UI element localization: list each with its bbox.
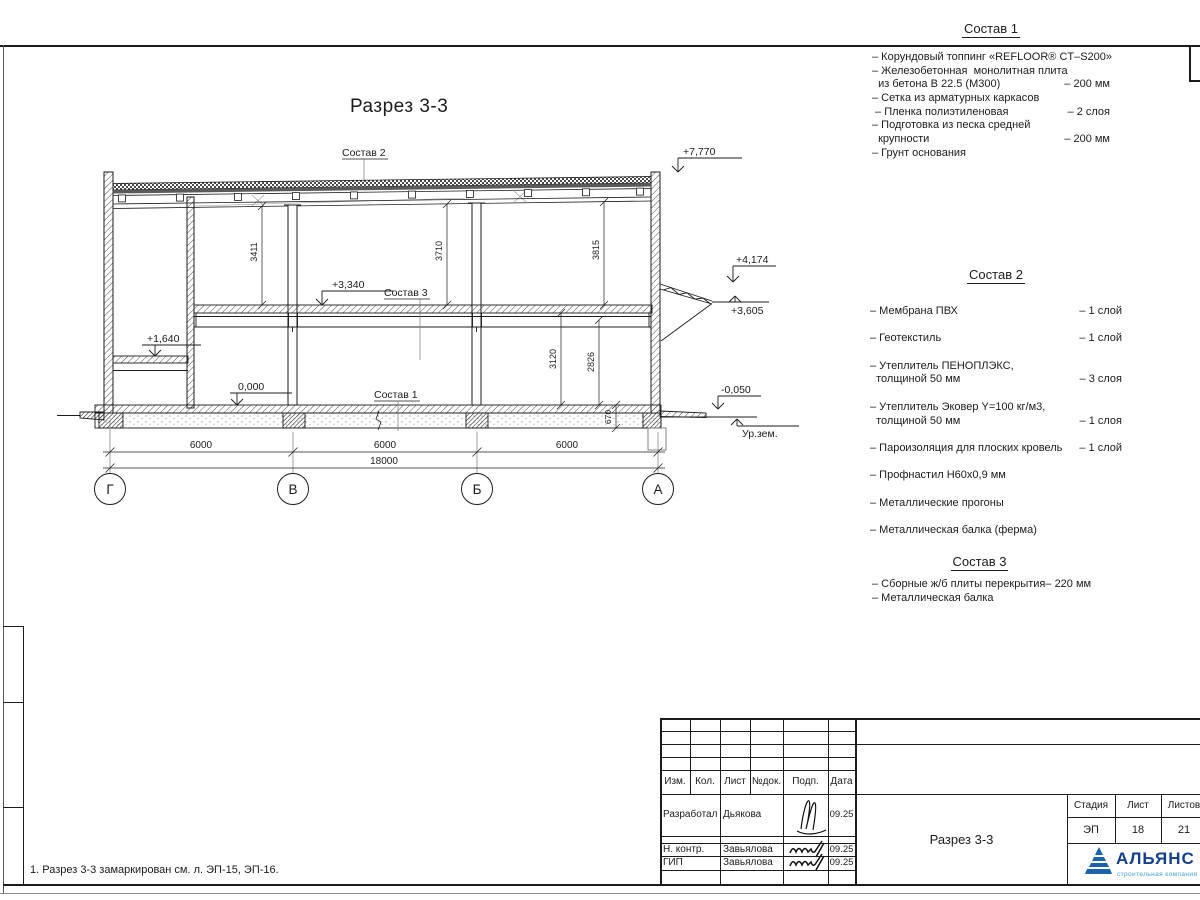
ramp-edge (80, 412, 104, 420)
item-text: – Мембрана ПВХ (870, 305, 958, 319)
staff-name: Завьялова (723, 843, 783, 856)
ground-level-label: Ур.зем. (742, 428, 778, 440)
rev-header: Лист (720, 770, 750, 794)
canopy (660, 284, 712, 341)
item-text: – Сетка из арматурных каркасов (872, 92, 1039, 106)
sostav3-title-text: Состав 3 (951, 554, 1009, 571)
item-qty: – 1 слой (1079, 305, 1122, 319)
list-item: – Утеплитель Эковер Y=100 кг/м3, (870, 401, 1122, 415)
rev-header: Дата (828, 770, 855, 794)
format-box-bottom (1189, 80, 1200, 82)
foundation-pad (466, 413, 488, 428)
staff-role: Разработал (663, 794, 720, 836)
axis-letter: Г (106, 482, 114, 497)
item-qty: – 200 мм (1064, 78, 1110, 92)
drawing-sheet: +7,770 +4,174 +3,605 +3,340 +1,640 0,000… (0, 0, 1200, 900)
item-text: крупности (872, 133, 929, 147)
elevation-label: +7,770 (683, 146, 716, 158)
company-logo-icon (1085, 847, 1112, 874)
drawing-title: Разрез 3-3 (350, 96, 448, 118)
sostav1-label: Состав 1 (374, 389, 418, 401)
sheets-header: Листов (1161, 794, 1200, 817)
list-item (870, 483, 1122, 497)
dim-text: 3411 (249, 242, 259, 261)
sostav2-title-text: Состав 2 (967, 267, 1025, 284)
rev-header: Изм. (660, 770, 690, 794)
list-item (870, 428, 1122, 442)
walls (104, 172, 660, 413)
span-dim: 6000 (556, 440, 579, 451)
list-item: крупности– 200 мм (872, 133, 1110, 147)
sostav1-title-text: Состав 1 (962, 21, 1020, 38)
item-text: – Железобетонная монолитная плита (872, 65, 1068, 79)
item-qty: – 2 слоя (1068, 106, 1110, 120)
foundation-pad (643, 413, 661, 428)
item-qty: – 1 слой (1079, 442, 1122, 456)
sostav2-title: Состав 2 (870, 267, 1122, 284)
tb-line (720, 718, 721, 885)
elevation-label: +3,605 (731, 305, 764, 317)
total-dim: 18000 (370, 456, 398, 467)
dim-text: 2826 (586, 352, 596, 372)
list-item: – Геотекстиль– 1 слой (870, 332, 1122, 346)
sheet-note: 1. Разрез 3-3 замаркирован см. л. ЭП-15,… (30, 864, 279, 876)
staff-name: Завьялова (723, 856, 783, 870)
format-box-left (1189, 45, 1191, 81)
list-item (870, 510, 1122, 524)
staff-role: ГИП (663, 856, 720, 870)
list-item: из бетона В 22.5 (М300)– 200 мм (872, 78, 1110, 92)
list-item: – Сборные ж/б плиты перекрытия– 220 мм (872, 578, 1087, 592)
span-dim: 6000 (374, 440, 397, 451)
landing (113, 356, 188, 363)
tb-line (660, 744, 1200, 745)
columns (284, 203, 485, 405)
item-qty: – 1 слой (1079, 332, 1122, 346)
frame-top-line (0, 45, 1200, 47)
item-qty: – 1 слоя (1080, 415, 1122, 429)
list-item: – Металлические прогоны (870, 497, 1122, 511)
rev-header: Кол. (690, 770, 720, 794)
sostav1-title: Состав 1 (872, 21, 1110, 38)
bottom-dimension-texts: 6000 6000 6000 18000 Г В Б А (106, 440, 662, 497)
span-dim: 6000 (190, 440, 213, 451)
staff-date: 09.25 (828, 856, 855, 870)
elevation-label: -0,050 (721, 384, 751, 396)
sostav1-list: – Корундовый топпинг «REFLOOR® CT–S200» … (872, 51, 1110, 161)
item-text: – Подготовка из песка средней (872, 119, 1030, 133)
item-qty: – 200 мм (1064, 133, 1110, 147)
item-text: – Сборные ж/б плиты перекрытия (872, 578, 1045, 592)
elevation-label: +4,174 (736, 254, 769, 266)
item-text: толщиной 50 мм (870, 415, 960, 429)
sheet-left-edge (3, 45, 4, 893)
item-qty: – 3 слоя (1080, 373, 1122, 387)
stamp-strip-divider (3, 807, 23, 808)
sheets-total: 21 (1161, 817, 1200, 843)
item-text: – Утеплитель Эковер Y=100 кг/м3, (870, 401, 1045, 415)
sheet-header: Лист (1115, 794, 1161, 817)
staff-date: 09.25 (828, 843, 855, 856)
list-item (870, 456, 1122, 470)
item-text: – Пленка полиэтиленовая (872, 106, 1008, 120)
inner-wall (187, 197, 194, 408)
sheet-bottom-edge (0, 893, 1200, 894)
foundation-pit (648, 428, 666, 450)
company-logo-text: АЛЬЯНС (1116, 849, 1195, 869)
item-text: – Утеплитель ПЕНОПЛЭКС, (870, 360, 1014, 374)
tb-line (660, 836, 855, 837)
stage-value: ЭП (1067, 817, 1115, 843)
rev-header: Подп. (783, 770, 828, 794)
apron (660, 411, 706, 418)
axis-letter: А (653, 482, 662, 497)
column-b (472, 203, 481, 405)
list-item: – Сетка из арматурных каркасов (872, 92, 1110, 106)
vertical-dimension-texts: 3411 3710 3815 3120 2826 670 (249, 240, 613, 424)
dim-text: 3710 (434, 241, 444, 261)
tb-line (660, 870, 855, 871)
item-qty: – 220 мм (1045, 578, 1091, 592)
item-text: – Пароизоляция для плоских кровель (870, 442, 1062, 456)
ground-floor (57, 405, 757, 450)
list-item: – Мембрана ПВХ– 1 слой (870, 305, 1122, 319)
list-item: – Утеплитель ПЕНОПЛЭКС, (870, 360, 1122, 374)
list-item: – Подготовка из песка средней (872, 119, 1110, 133)
list-item (870, 319, 1122, 333)
company-tagline: строительная компания (1117, 871, 1197, 878)
item-text: – Металлическая балка (872, 592, 994, 606)
item-text: – Металлическая балка (ферма) (870, 524, 1037, 538)
staff-name: Дьякова (723, 794, 783, 836)
list-item (870, 387, 1122, 401)
tb-line (783, 718, 784, 885)
sheet-title-cell: Разрез 3-3 (856, 794, 1067, 885)
left-wall (104, 172, 113, 413)
item-text: – Грунт основания (872, 147, 966, 161)
list-item (870, 346, 1122, 360)
rev-header: №док. (750, 770, 783, 794)
list-item: – Металлическая балка (ферма) (870, 524, 1122, 538)
axis-letter: Б (473, 482, 482, 497)
tb-line (660, 718, 1200, 720)
sostav3-list: – Сборные ж/б плиты перекрытия– 220 мм –… (872, 578, 1087, 605)
staff-date: 09.25 (828, 794, 855, 836)
list-item: – Профнастил Н60х0,9 мм (870, 469, 1122, 483)
axis-letter: В (288, 482, 297, 497)
elevation-label: +1,640 (147, 333, 180, 345)
item-text: – Металлические прогоны (870, 497, 1004, 511)
list-item: толщиной 50 мм– 1 слоя (870, 415, 1122, 429)
dim-text: 3815 (591, 240, 601, 260)
list-item: толщиной 50 мм– 3 слоя (870, 373, 1122, 387)
sheet-number: 18 (1115, 817, 1161, 843)
list-item: – Грунт основания (872, 147, 1110, 161)
tb-line (660, 718, 662, 885)
signature (797, 801, 826, 834)
list-item: – Пленка полиэтиленовая– 2 слоя (872, 106, 1110, 120)
item-text: – Корундовый топпинг «REFLOOR® CT–S200» (872, 51, 1112, 65)
staff-role: Н. контр. (663, 843, 720, 856)
vertical-dimensions (258, 198, 620, 432)
stamp-strip-divider (3, 702, 23, 703)
list-item: – Корундовый топпинг «REFLOOR® CT–S200» (872, 51, 1110, 65)
sostav3-title: Состав 3 (872, 554, 1087, 571)
dim-text: 3120 (548, 349, 558, 369)
list-item: – Пароизоляция для плоских кровель– 1 сл… (870, 442, 1122, 456)
foundation-pad (283, 413, 305, 428)
item-text: – Профнастил Н60х0,9 мм (870, 469, 1006, 483)
dim-text: 670 (603, 410, 613, 424)
sostav3-label: Состав 3 (384, 287, 428, 299)
list-item: – Железобетонная монолитная плита (872, 65, 1110, 79)
sostav2-label: Состав 2 (342, 147, 386, 159)
stamp-strip-line (23, 626, 24, 884)
list-item: – Металлическая балка (872, 592, 1087, 606)
item-text: – Геотекстиль (870, 332, 941, 346)
elevation-label: 0,000 (238, 381, 264, 393)
sostav2-list: – Мембрана ПВХ– 1 слой – Геотекстиль– 1 … (870, 305, 1122, 538)
tb-line (1067, 843, 1200, 844)
stamp-strip-divider (3, 626, 23, 627)
stage-header: Стадия (1067, 794, 1115, 817)
item-text: из бетона В 22.5 (М300) (872, 78, 1000, 92)
elevation-label: +3,340 (332, 279, 365, 291)
item-text: толщиной 50 мм (870, 373, 960, 387)
right-wall (651, 172, 660, 413)
